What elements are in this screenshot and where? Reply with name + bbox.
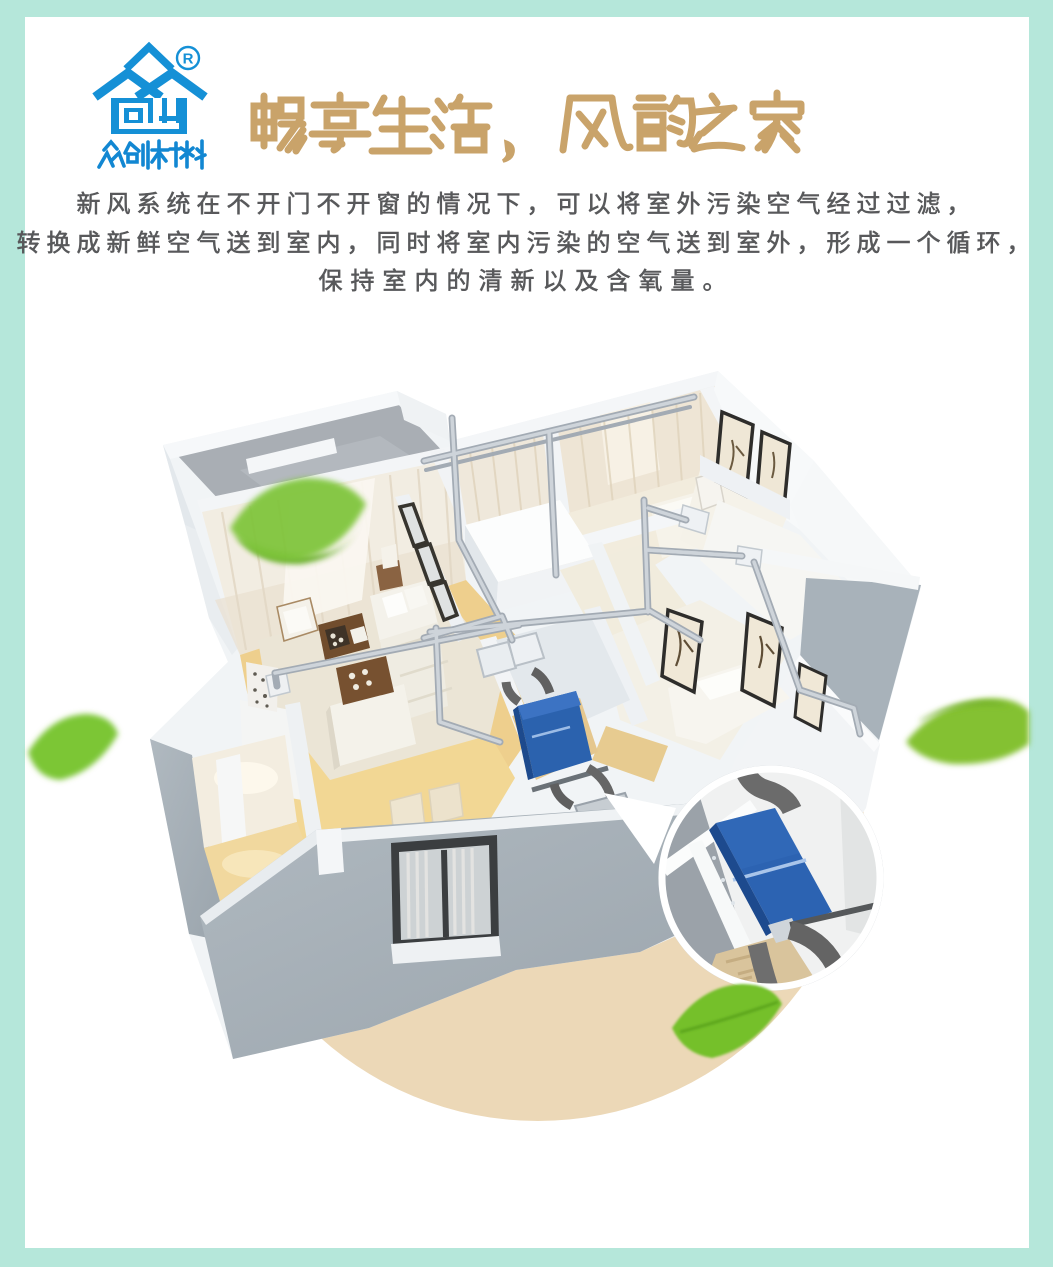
svg-text:R: R (183, 51, 194, 68)
